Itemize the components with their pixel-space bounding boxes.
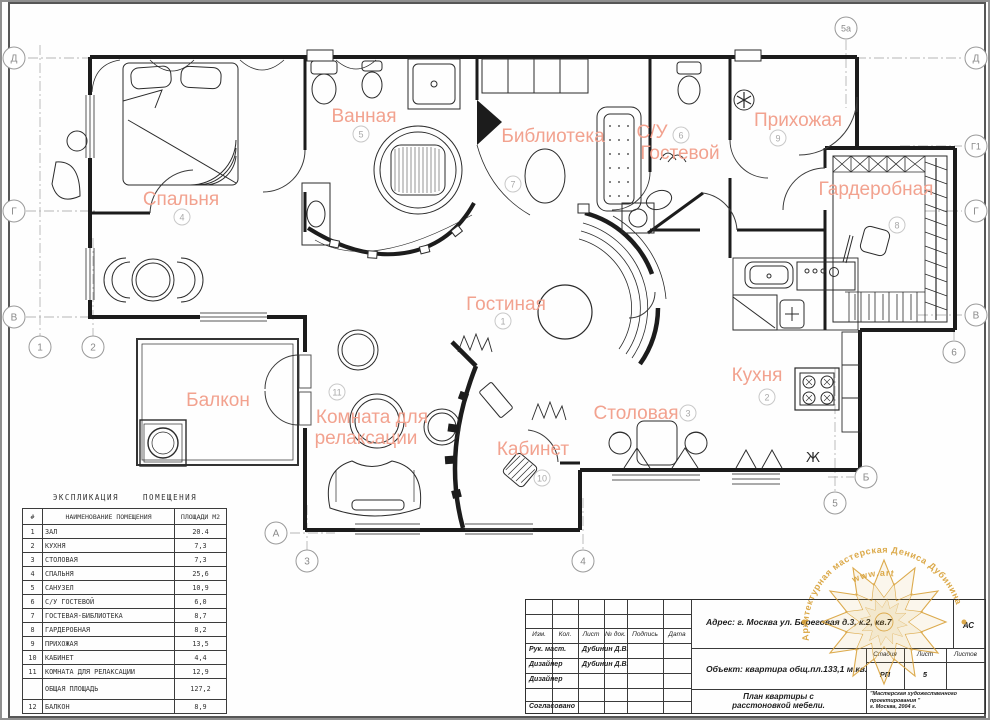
explication-title: ЭКСПЛИКАЦИЯ ПОМЕЩЕНИЯ: [22, 488, 228, 508]
svg-text:Б: Б: [863, 473, 870, 484]
tb-role-2: Дизайнер: [529, 661, 562, 668]
tb-doc-title-2: расстоновкой мебели.: [693, 701, 864, 710]
table-row: 4СПАЛЬНЯ25,6: [23, 567, 227, 581]
axis-marker-v-right: В: [965, 304, 987, 326]
room-label-prihozhaya: Прихожая: [754, 110, 842, 131]
svg-text:10: 10: [537, 474, 547, 484]
axis-marker-d-right: Д: [965, 47, 987, 69]
axis-marker-6: 6: [943, 341, 965, 363]
svg-text:5а: 5а: [841, 24, 851, 34]
svg-text:Д: Д: [973, 54, 980, 65]
room-label-gostevoy: Гостевой: [640, 143, 719, 164]
pilaster: [307, 50, 333, 61]
room-label-stolovaya: Столовая: [594, 403, 679, 424]
table-row: 11КОМНАТА ДЛЯ РЕЛАКСАЦИИ12,9: [23, 665, 227, 679]
svg-text:7: 7: [510, 180, 515, 190]
svg-text:2: 2: [90, 343, 96, 354]
table-row: 5САНУЗЕЛ10,9: [23, 581, 227, 595]
room-label-su: С/У: [636, 122, 668, 143]
axis-marker-3: 3: [296, 550, 318, 572]
table-row: 6С/У ГОСТЕВОЙ6,0: [23, 595, 227, 609]
svg-text:9: 9: [775, 134, 780, 144]
axis-marker-5: 5: [824, 492, 846, 514]
tb-name-1: Дубинин Д.В.: [582, 646, 629, 653]
table-row: 2КУХНЯ7,3: [23, 539, 227, 553]
rotunda: [538, 204, 666, 358]
room-label-relax1: Комната для: [316, 407, 428, 428]
svg-text:8: 8: [894, 221, 899, 231]
tb-year: г. Москва, 2004 г.: [870, 704, 982, 711]
explication-header: # НАИМЕНОВАНИЕ ПОМЕЩЕНИЯ ПЛОЩАДИ М2: [23, 509, 227, 525]
kitchen-fittings: [733, 258, 860, 468]
svg-text:В: В: [11, 313, 18, 324]
bathroom-fixtures: [302, 59, 472, 258]
tea-table: [104, 258, 203, 302]
tb-col-izm: Изм.: [527, 631, 551, 638]
room-label-kabinet: Кабинет: [497, 439, 570, 460]
room-labels: Спальня Ванная Библиотека С/У Гостевой П…: [143, 106, 934, 460]
axis-marker-g-right: Г: [965, 200, 987, 222]
tb-object: Объект: квартира общ.пл.133,1 м.кв.: [706, 664, 867, 674]
vent-icon: Ж: [806, 451, 820, 466]
axis-marker-2: 2: [82, 336, 104, 358]
tb-address: Адрес: г. Москва ул. Береговая д.3, к.2,…: [706, 617, 892, 627]
svg-text:3: 3: [304, 557, 310, 568]
snowflake-icon: [737, 92, 751, 108]
svg-text:5: 5: [358, 130, 363, 140]
table-row: 3СТОЛОВАЯ7,3: [23, 553, 227, 567]
table-row: 9ПРИХОЖАЯ13,5: [23, 637, 227, 651]
table-row: 10КАБИНЕТ4,4: [23, 651, 227, 665]
room-label-spalnya: Спальня: [143, 189, 219, 210]
hallway-items: [734, 90, 754, 110]
svg-text:Г: Г: [11, 207, 17, 218]
pilaster: [735, 50, 761, 61]
svg-text:1: 1: [500, 317, 505, 327]
axis-marker-5a: 5а: [835, 17, 857, 39]
pouf: [67, 131, 87, 151]
tb-name-2: Дубинин Д.В.: [582, 661, 629, 668]
interior-walls: [90, 57, 825, 528]
svg-text:А: А: [273, 529, 280, 540]
axis-marker-g1-right: Г1: [965, 135, 987, 157]
axis-marker-v-left: В: [3, 306, 25, 328]
axis-marker-a: А: [265, 522, 287, 544]
axis-marker-d-left: Д: [3, 47, 25, 69]
dining-set: [609, 421, 707, 468]
axis-marker-g-left: Г: [3, 200, 25, 222]
svg-text:11: 11: [332, 388, 341, 398]
svg-text:Г: Г: [973, 207, 979, 218]
room-label-gostinaya: Гостиная: [466, 294, 546, 315]
svg-text:6: 6: [678, 131, 683, 141]
wall-wedge: [477, 100, 502, 145]
tb-col-ndok: № док.: [604, 631, 627, 638]
room-label-garderobnaya: Гардеробная: [819, 179, 934, 200]
tb-listov-label: Листов: [946, 651, 985, 658]
tb-code: АС: [953, 621, 984, 630]
bed: [123, 63, 238, 185]
svg-text:Д: Д: [11, 54, 18, 65]
armchair: [52, 162, 80, 199]
svg-text:Г1: Г1: [971, 142, 981, 152]
doors: [150, 97, 857, 462]
title-block: Изм. Кол. Лист № док. Подпись Дата Рук. …: [525, 599, 986, 714]
svg-text:2: 2: [764, 393, 769, 403]
room-label-vannaya: Ванная: [331, 106, 396, 127]
tb-col-kol: Кол.: [552, 631, 578, 638]
svg-text:1: 1: [37, 343, 43, 354]
tb-list-value: 5: [904, 670, 946, 679]
drawing-sheet: Ж: [0, 0, 990, 720]
explication-table: ЭКСПЛИКАЦИЯ ПОМЕЩЕНИЯ # НАИМЕНОВАНИЕ ПОМ…: [22, 488, 228, 714]
svg-text:6: 6: [951, 348, 957, 359]
tb-doc-title-1: План квартиры с: [693, 692, 864, 701]
svg-text:3: 3: [685, 409, 690, 419]
room-label-balkon: Балкон: [186, 390, 250, 411]
tb-col-podpis: Подпись: [627, 631, 663, 638]
svg-text:В: В: [973, 311, 980, 322]
table-row: 8ГАРДЕРОБНАЯ8,2: [23, 623, 227, 637]
room-label-biblioteka: Библиотека: [501, 126, 605, 147]
room-label-kuhnya: Кухня: [732, 365, 783, 386]
axis-marker-4: 4: [572, 550, 594, 572]
svg-text:4: 4: [580, 557, 586, 568]
room-label-relax2: релаксации: [315, 428, 418, 449]
tb-stage-value: РП: [866, 670, 904, 679]
table-row: 7ГОСТЕВАЯ-БИБЛИОТЕКА8,7: [23, 609, 227, 623]
tb-stage-label: Стадия: [866, 651, 904, 658]
study-furniture: [458, 334, 566, 488]
table-row-balcony: 12БАЛКОН8,9: [23, 700, 227, 714]
tb-agreed: Согласовано: [529, 703, 575, 710]
svg-text:5: 5: [832, 499, 838, 510]
tb-role-3: Дизайнер: [529, 676, 562, 683]
tb-list-label: Лист: [904, 651, 946, 658]
table-row-total: ОБЩАЯ ПЛОЩАДЬ127,2: [23, 679, 227, 700]
svg-text:4: 4: [179, 213, 184, 223]
tb-col-data: Дата: [663, 631, 691, 638]
axis-marker-b: Б: [855, 466, 877, 488]
tb-col-list: Лист: [578, 631, 604, 638]
tb-studio: "Мастерская художественного проектирован…: [870, 691, 982, 704]
tb-role-1: Рук. маст.: [529, 646, 566, 653]
axis-marker-1: 1: [29, 336, 51, 358]
table-row: 1ЗАЛ20.4: [23, 525, 227, 539]
